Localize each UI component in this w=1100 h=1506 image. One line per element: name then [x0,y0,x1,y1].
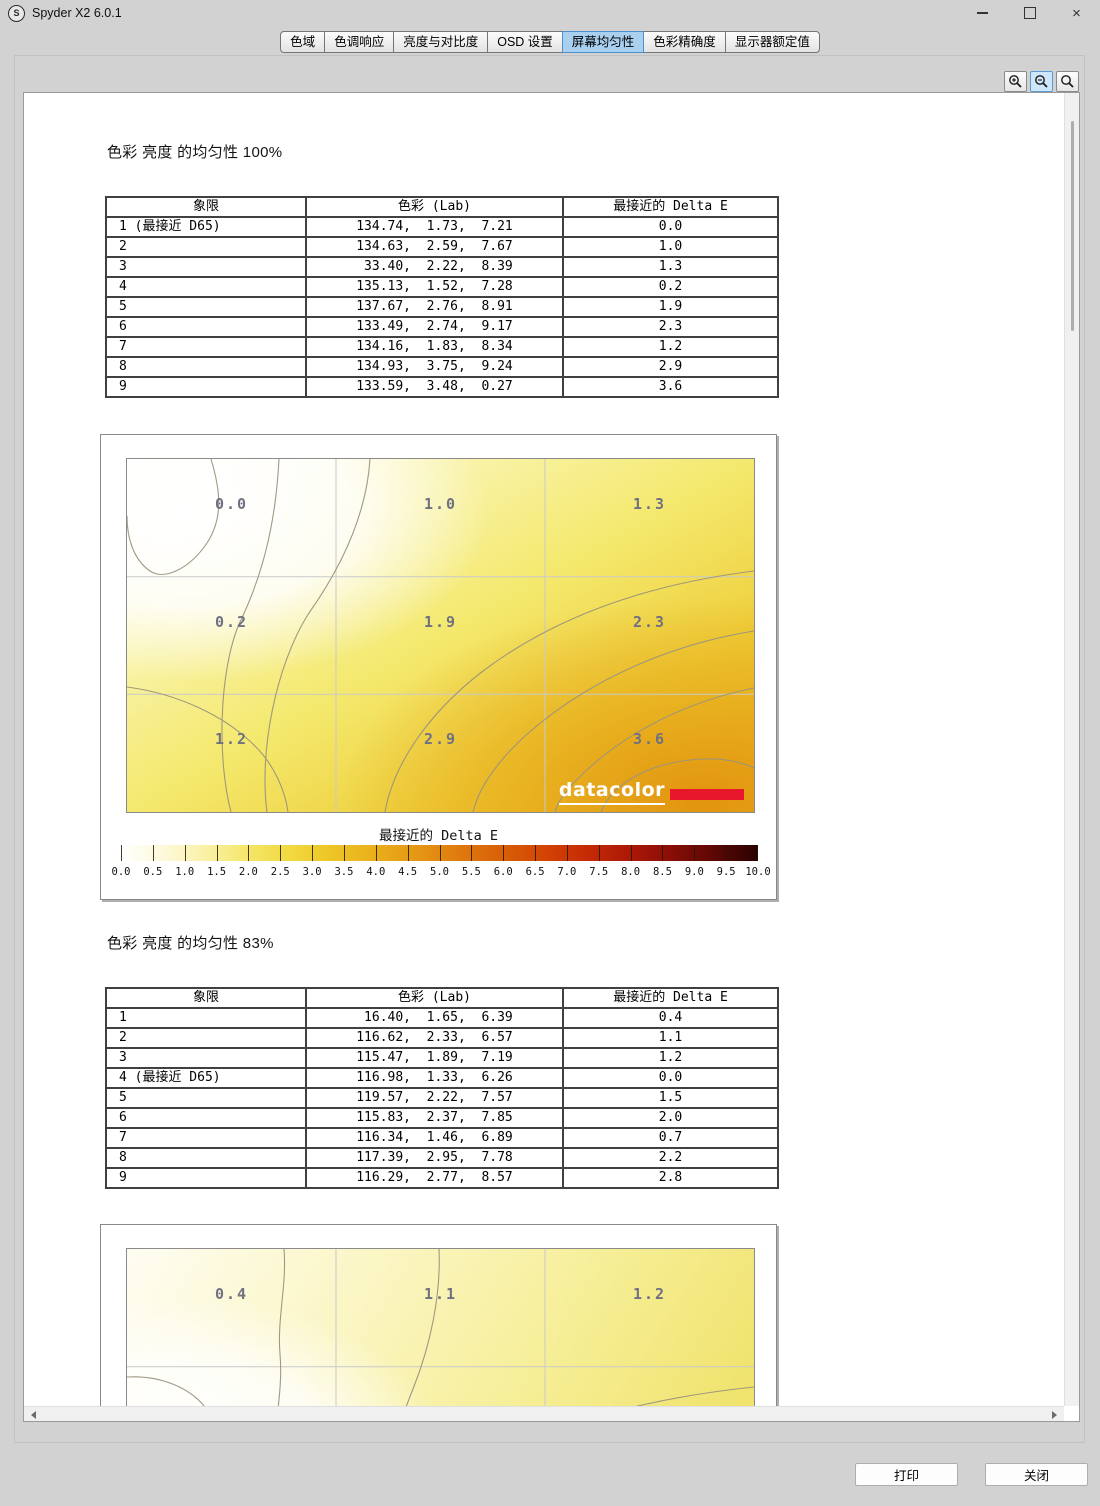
quad-cell: 6 [106,1108,306,1128]
colorbar-tick-label: 1.5 [207,866,226,878]
quad-cell: 7 [106,1128,306,1148]
colorbar-tick-label: 2.0 [239,866,258,878]
colorbar-tick-label: 5.5 [462,866,481,878]
colorbar-tick-label: 5.0 [430,866,449,878]
contour-value-label: 1.0 [424,495,457,513]
scrollbar-corner [1064,1406,1079,1421]
lab-cell: 135.13, 1.52, 7.28 [306,277,563,297]
contour-value-label: 1.2 [215,730,248,748]
lab-cell: 116.29, 2.77, 8.57 [306,1168,563,1188]
close-button[interactable]: × [1053,0,1100,26]
colorbar-tick-label: 9.5 [717,866,736,878]
report-viewport: 色彩 亮度 的均匀性 100% 象限色彩 (Lab)最接近的 Delta E1 … [23,92,1080,1422]
section-heading-100: 色彩 亮度 的均匀性 100% [107,141,282,162]
colorbar-tick-label: 3.0 [303,866,322,878]
print-button[interactable]: 打印 [855,1463,958,1486]
colorbar-tick-label: 7.5 [589,866,608,878]
colorbar-tick-mark [757,845,758,861]
colorbar-tick-mark [248,845,249,861]
window-titlebar: S Spyder X2 6.0.1 × [0,0,1100,26]
zoom-reset-button[interactable] [1056,71,1079,92]
lab-cell: 133.59, 3.48, 0.27 [306,377,563,397]
quad-cell: 1 (最接近 D65) [106,217,306,237]
colorbar-tick-mark [599,845,600,861]
datacolor-logo: datacolor [559,781,744,805]
delta-cell: 2.2 [563,1148,778,1168]
window-controls: × [959,0,1100,26]
tab-1[interactable]: 色域 [280,31,325,53]
minimize-button[interactable] [959,0,1006,26]
lab-cell: 133.49, 2.74, 9.17 [306,317,563,337]
colorbar-tick-mark [344,845,345,861]
vertical-scrollbar-thumb[interactable] [1071,121,1074,331]
colorbar-tick-label: 6.0 [494,866,513,878]
table-row: 8117.39, 2.95, 7.782.2 [106,1148,778,1168]
delta-cell: 1.0 [563,237,778,257]
colorbar-tick-label: 9.0 [685,866,704,878]
column-header: 象限 [106,197,306,217]
close-icon: × [1072,6,1081,21]
quad-cell: 6 [106,317,306,337]
contour-value-label: 1.1 [424,1285,457,1303]
delta-cell: 0.7 [563,1128,778,1148]
colorbar-tick-mark [662,845,663,861]
colorbar-tick-label: 0.5 [143,866,162,878]
delta-e-colorbar [121,845,758,861]
table-row: 7116.34, 1.46, 6.890.7 [106,1128,778,1148]
close-dialog-button[interactable]: 关闭 [985,1463,1088,1486]
delta-cell: 2.3 [563,317,778,337]
zoom-out-button[interactable] [1030,71,1053,92]
colorbar-tick-label: 8.5 [653,866,672,878]
colorbar-tick-mark [408,845,409,861]
colorbar-tick-mark [567,845,568,861]
uniformity-table-100: 象限色彩 (Lab)最接近的 Delta E1 (最接近 D65)134.74,… [105,196,779,398]
colorbar-tick-mark [503,845,504,861]
maximize-button[interactable] [1006,0,1053,26]
contour-value-label: 2.9 [424,730,457,748]
tab-6[interactable]: 色彩精确度 [643,31,726,53]
lab-cell: 134.74, 1.73, 7.21 [306,217,563,237]
colorbar-tick-mark [376,845,377,861]
table-row: 5137.67, 2.76, 8.911.9 [106,297,778,317]
table-row: 8134.93, 3.75, 9.242.9 [106,357,778,377]
delta-cell: 0.2 [563,277,778,297]
colorbar-tick-mark [280,845,281,861]
quad-cell: 3 [106,1048,306,1068]
quad-cell: 9 [106,377,306,397]
table-header-row: 象限色彩 (Lab)最接近的 Delta E [106,197,778,217]
table-row: 3 33.40, 2.22, 8.391.3 [106,257,778,277]
contour-value-label: 1.3 [633,495,666,513]
colorbar-tick-mark [631,845,632,861]
content-panel: 色彩 亮度 的均匀性 100% 象限色彩 (Lab)最接近的 Delta E1 … [14,55,1085,1443]
lab-cell: 134.93, 3.75, 9.24 [306,357,563,377]
contour-plot-83: 0.41.11.2 [126,1248,755,1406]
table-row: 2134.63, 2.59, 7.671.0 [106,237,778,257]
tab-4[interactable]: OSD 设置 [487,31,563,53]
contour-value-label: 0.4 [215,1285,248,1303]
table-row: 5119.57, 2.22, 7.571.5 [106,1088,778,1108]
contour-value-label: 0.0 [215,495,248,513]
contour-value-label: 2.3 [633,613,666,631]
minimize-icon [977,12,988,14]
uniformity-table-83: 象限色彩 (Lab)最接近的 Delta E1 16.40, 1.65, 6.3… [105,987,779,1189]
contour-chart-100: datacolor 0.01.01.30.21.92.31.22.93.6 最接… [100,434,777,900]
tab-2[interactable]: 色调响应 [324,31,394,53]
zoom-out-icon [1034,74,1049,89]
colorbar-tick-mark [217,845,218,861]
app-title: Spyder X2 6.0.1 [32,6,122,20]
datacolor-logo-text: datacolor [559,781,665,805]
delta-cell: 0.0 [563,217,778,237]
table-row: 1 (最接近 D65)134.74, 1.73, 7.210.0 [106,217,778,237]
colorbar-tick-label: 0.0 [112,866,131,878]
lab-cell: 134.16, 1.83, 8.34 [306,337,563,357]
lab-cell: 33.40, 2.22, 8.39 [306,257,563,277]
contour-value-label: 0.2 [215,613,248,631]
lab-cell: 137.67, 2.76, 8.91 [306,297,563,317]
table-row: 4 (最接近 D65)116.98, 1.33, 6.260.0 [106,1068,778,1088]
datacolor-logo-bar [670,789,744,800]
horizontal-scrollbar[interactable] [24,1406,1064,1421]
tab-strip: 色域色调响应亮度与对比度OSD 设置屏幕均匀性色彩精确度显示器额定值 [0,31,1100,53]
colorbar-tick-mark [185,845,186,861]
column-header: 色彩 (Lab) [306,197,563,217]
delta-cell: 1.2 [563,337,778,357]
lab-cell: 116.62, 2.33, 6.57 [306,1028,563,1048]
delta-cell: 2.9 [563,357,778,377]
spyder-logo-icon: S [8,5,25,22]
quad-cell: 1 [106,1008,306,1028]
column-header: 最接近的 Delta E [563,988,778,1008]
colorbar-tick-label: 8.0 [621,866,640,878]
maximize-icon [1024,7,1036,19]
delta-cell: 0.4 [563,1008,778,1028]
lab-cell: 119.57, 2.22, 7.57 [306,1088,563,1108]
lab-cell: 16.40, 1.65, 6.39 [306,1008,563,1028]
lab-cell: 115.47, 1.89, 7.19 [306,1048,563,1068]
colorbar-tick-mark [726,845,727,861]
lab-cell: 116.98, 1.33, 6.26 [306,1068,563,1088]
colorbar-tick-label: 4.5 [398,866,417,878]
contour-plot-100: datacolor 0.01.01.30.21.92.31.22.93.6 [126,458,755,813]
column-header: 色彩 (Lab) [306,988,563,1008]
quad-cell: 4 (最接近 D65) [106,1068,306,1088]
colorbar-tick-label: 1.0 [175,866,194,878]
colorbar-tick-mark [694,845,695,861]
table-row: 6133.49, 2.74, 9.172.3 [106,317,778,337]
contour-value-label: 3.6 [633,730,666,748]
colorbar-tick-mark [440,845,441,861]
quad-cell: 2 [106,1028,306,1048]
colorbar-title: 最接近的 Delta E [101,824,776,844]
quad-cell: 7 [106,337,306,357]
table-row: 9133.59, 3.48, 0.273.6 [106,377,778,397]
quad-cell: 3 [106,257,306,277]
contour-chart-83: 0.41.11.2 [100,1224,777,1406]
quad-cell: 4 [106,277,306,297]
zoom-in-icon [1008,74,1023,89]
tab-7[interactable]: 显示器额定值 [725,31,820,53]
quad-cell: 8 [106,357,306,377]
quad-cell: 9 [106,1168,306,1188]
section-heading-83: 色彩 亮度 的均匀性 83% [107,932,274,953]
colorbar-tick-mark [312,845,313,861]
delta-cell: 2.8 [563,1168,778,1188]
zoom-toolbar [1004,71,1079,92]
delta-cell: 0.0 [563,1068,778,1088]
delta-cell: 2.0 [563,1108,778,1128]
colorbar-tick-label: 4.0 [366,866,385,878]
colorbar-tick-label: 6.5 [526,866,545,878]
table-row: 6115.83, 2.37, 7.852.0 [106,1108,778,1128]
zoom-in-button[interactable] [1004,71,1027,92]
colorbar-tick-mark [153,845,154,861]
column-header: 象限 [106,988,306,1008]
colorbar-tick-mark [471,845,472,861]
colorbar-tick-label: 3.5 [334,866,353,878]
delta-cell: 3.6 [563,377,778,397]
table-row: 1 16.40, 1.65, 6.390.4 [106,1008,778,1028]
delta-cell: 1.2 [563,1048,778,1068]
table-header-row: 象限色彩 (Lab)最接近的 Delta E [106,988,778,1008]
zoom-reset-icon [1060,74,1075,89]
colorbar-tick-mark [535,845,536,861]
quad-cell: 5 [106,297,306,317]
colorbar-tick-label: 7.0 [557,866,576,878]
table-row: 9116.29, 2.77, 8.572.8 [106,1168,778,1188]
delta-cell: 1.1 [563,1028,778,1048]
colorbar-tick-mark [121,845,122,861]
quad-cell: 2 [106,237,306,257]
table-row: 4135.13, 1.52, 7.280.2 [106,277,778,297]
lab-cell: 134.63, 2.59, 7.67 [306,237,563,257]
scroll-right-icon[interactable] [1052,1411,1057,1419]
delta-cell: 1.5 [563,1088,778,1108]
contour-value-label: 1.2 [633,1285,666,1303]
vertical-scrollbar[interactable] [1064,93,1079,1406]
contour-value-label: 1.9 [424,613,457,631]
quad-cell: 8 [106,1148,306,1168]
tab-3[interactable]: 亮度与对比度 [393,31,488,53]
tab-5-active[interactable]: 屏幕均匀性 [562,31,645,53]
column-header: 最接近的 Delta E [563,197,778,217]
colorbar-tick-label: 2.5 [271,866,290,878]
scroll-left-icon[interactable] [31,1411,36,1419]
report-page: 色彩 亮度 的均匀性 100% 象限色彩 (Lab)最接近的 Delta E1 … [24,93,1064,1406]
lab-cell: 116.34, 1.46, 6.89 [306,1128,563,1148]
table-row: 2116.62, 2.33, 6.571.1 [106,1028,778,1048]
contour-field-83 [127,1249,754,1406]
quad-cell: 5 [106,1088,306,1108]
lab-cell: 115.83, 2.37, 7.85 [306,1108,563,1128]
delta-cell: 1.3 [563,257,778,277]
table-row: 7134.16, 1.83, 8.341.2 [106,337,778,357]
colorbar-tick-label: 10.0 [745,866,770,878]
table-row: 3115.47, 1.89, 7.191.2 [106,1048,778,1068]
delta-cell: 1.9 [563,297,778,317]
lab-cell: 117.39, 2.95, 7.78 [306,1148,563,1168]
